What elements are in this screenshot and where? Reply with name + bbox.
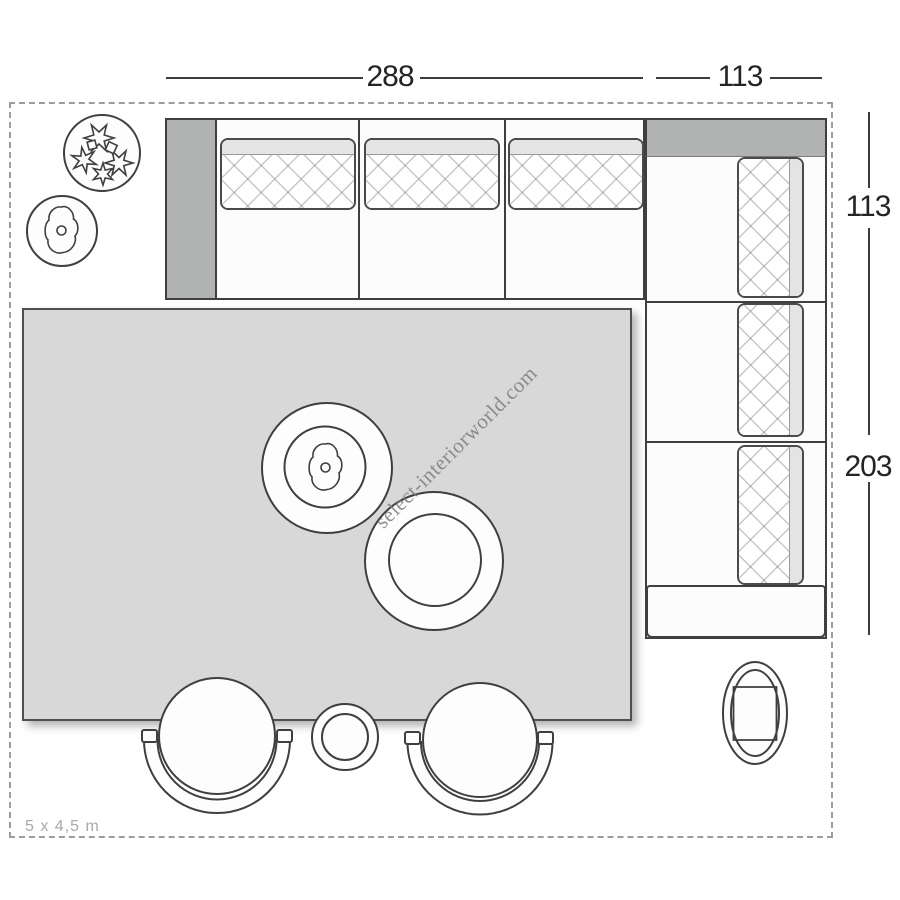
dimension-line xyxy=(868,112,870,188)
cushion-fold xyxy=(366,140,498,155)
cushion-fold xyxy=(222,140,354,155)
cushion-fold xyxy=(789,447,802,583)
dimension-line xyxy=(868,228,870,435)
cushion-quilting xyxy=(739,305,789,435)
dimension-line xyxy=(656,77,710,79)
dimension-label-sofa-width: 288 xyxy=(360,64,420,90)
sofa-bottom-armrest xyxy=(646,585,826,638)
cushion-fold xyxy=(789,159,802,296)
cushion-quilting xyxy=(222,155,354,208)
cushion-fold xyxy=(510,140,642,155)
dimension-label-corner-width: 113 xyxy=(710,64,770,90)
dimension-line xyxy=(868,482,870,635)
cushion-quilting xyxy=(366,155,498,208)
sofa-back-cushion xyxy=(364,138,500,210)
cushion-quilting xyxy=(510,155,642,208)
dimension-line xyxy=(770,77,822,79)
sofa-back-cushion xyxy=(220,138,356,210)
sofa-back-cushion xyxy=(508,138,644,210)
dimension-label-side-length: 203 xyxy=(838,454,898,480)
cushion-fold xyxy=(789,305,802,435)
dimension-line xyxy=(166,77,363,79)
sofa-seat-divider xyxy=(504,119,506,299)
sofa-back-cushion xyxy=(737,303,804,437)
cushion-quilting xyxy=(739,159,789,296)
dimension-line xyxy=(420,77,643,79)
dimension-label-corner-depth: 113 xyxy=(838,194,898,220)
sofa-back-cushion xyxy=(737,157,804,298)
room-size-label: 5 x 4,5 m xyxy=(25,818,100,836)
sofa-left-armrest xyxy=(165,118,217,300)
sofa-back-cushion xyxy=(737,445,804,585)
cushion-quilting xyxy=(739,447,789,583)
sofa-seat-divider xyxy=(358,119,360,299)
sofa-seat-divider xyxy=(646,441,826,443)
sofa-corner-backrest xyxy=(645,118,827,157)
